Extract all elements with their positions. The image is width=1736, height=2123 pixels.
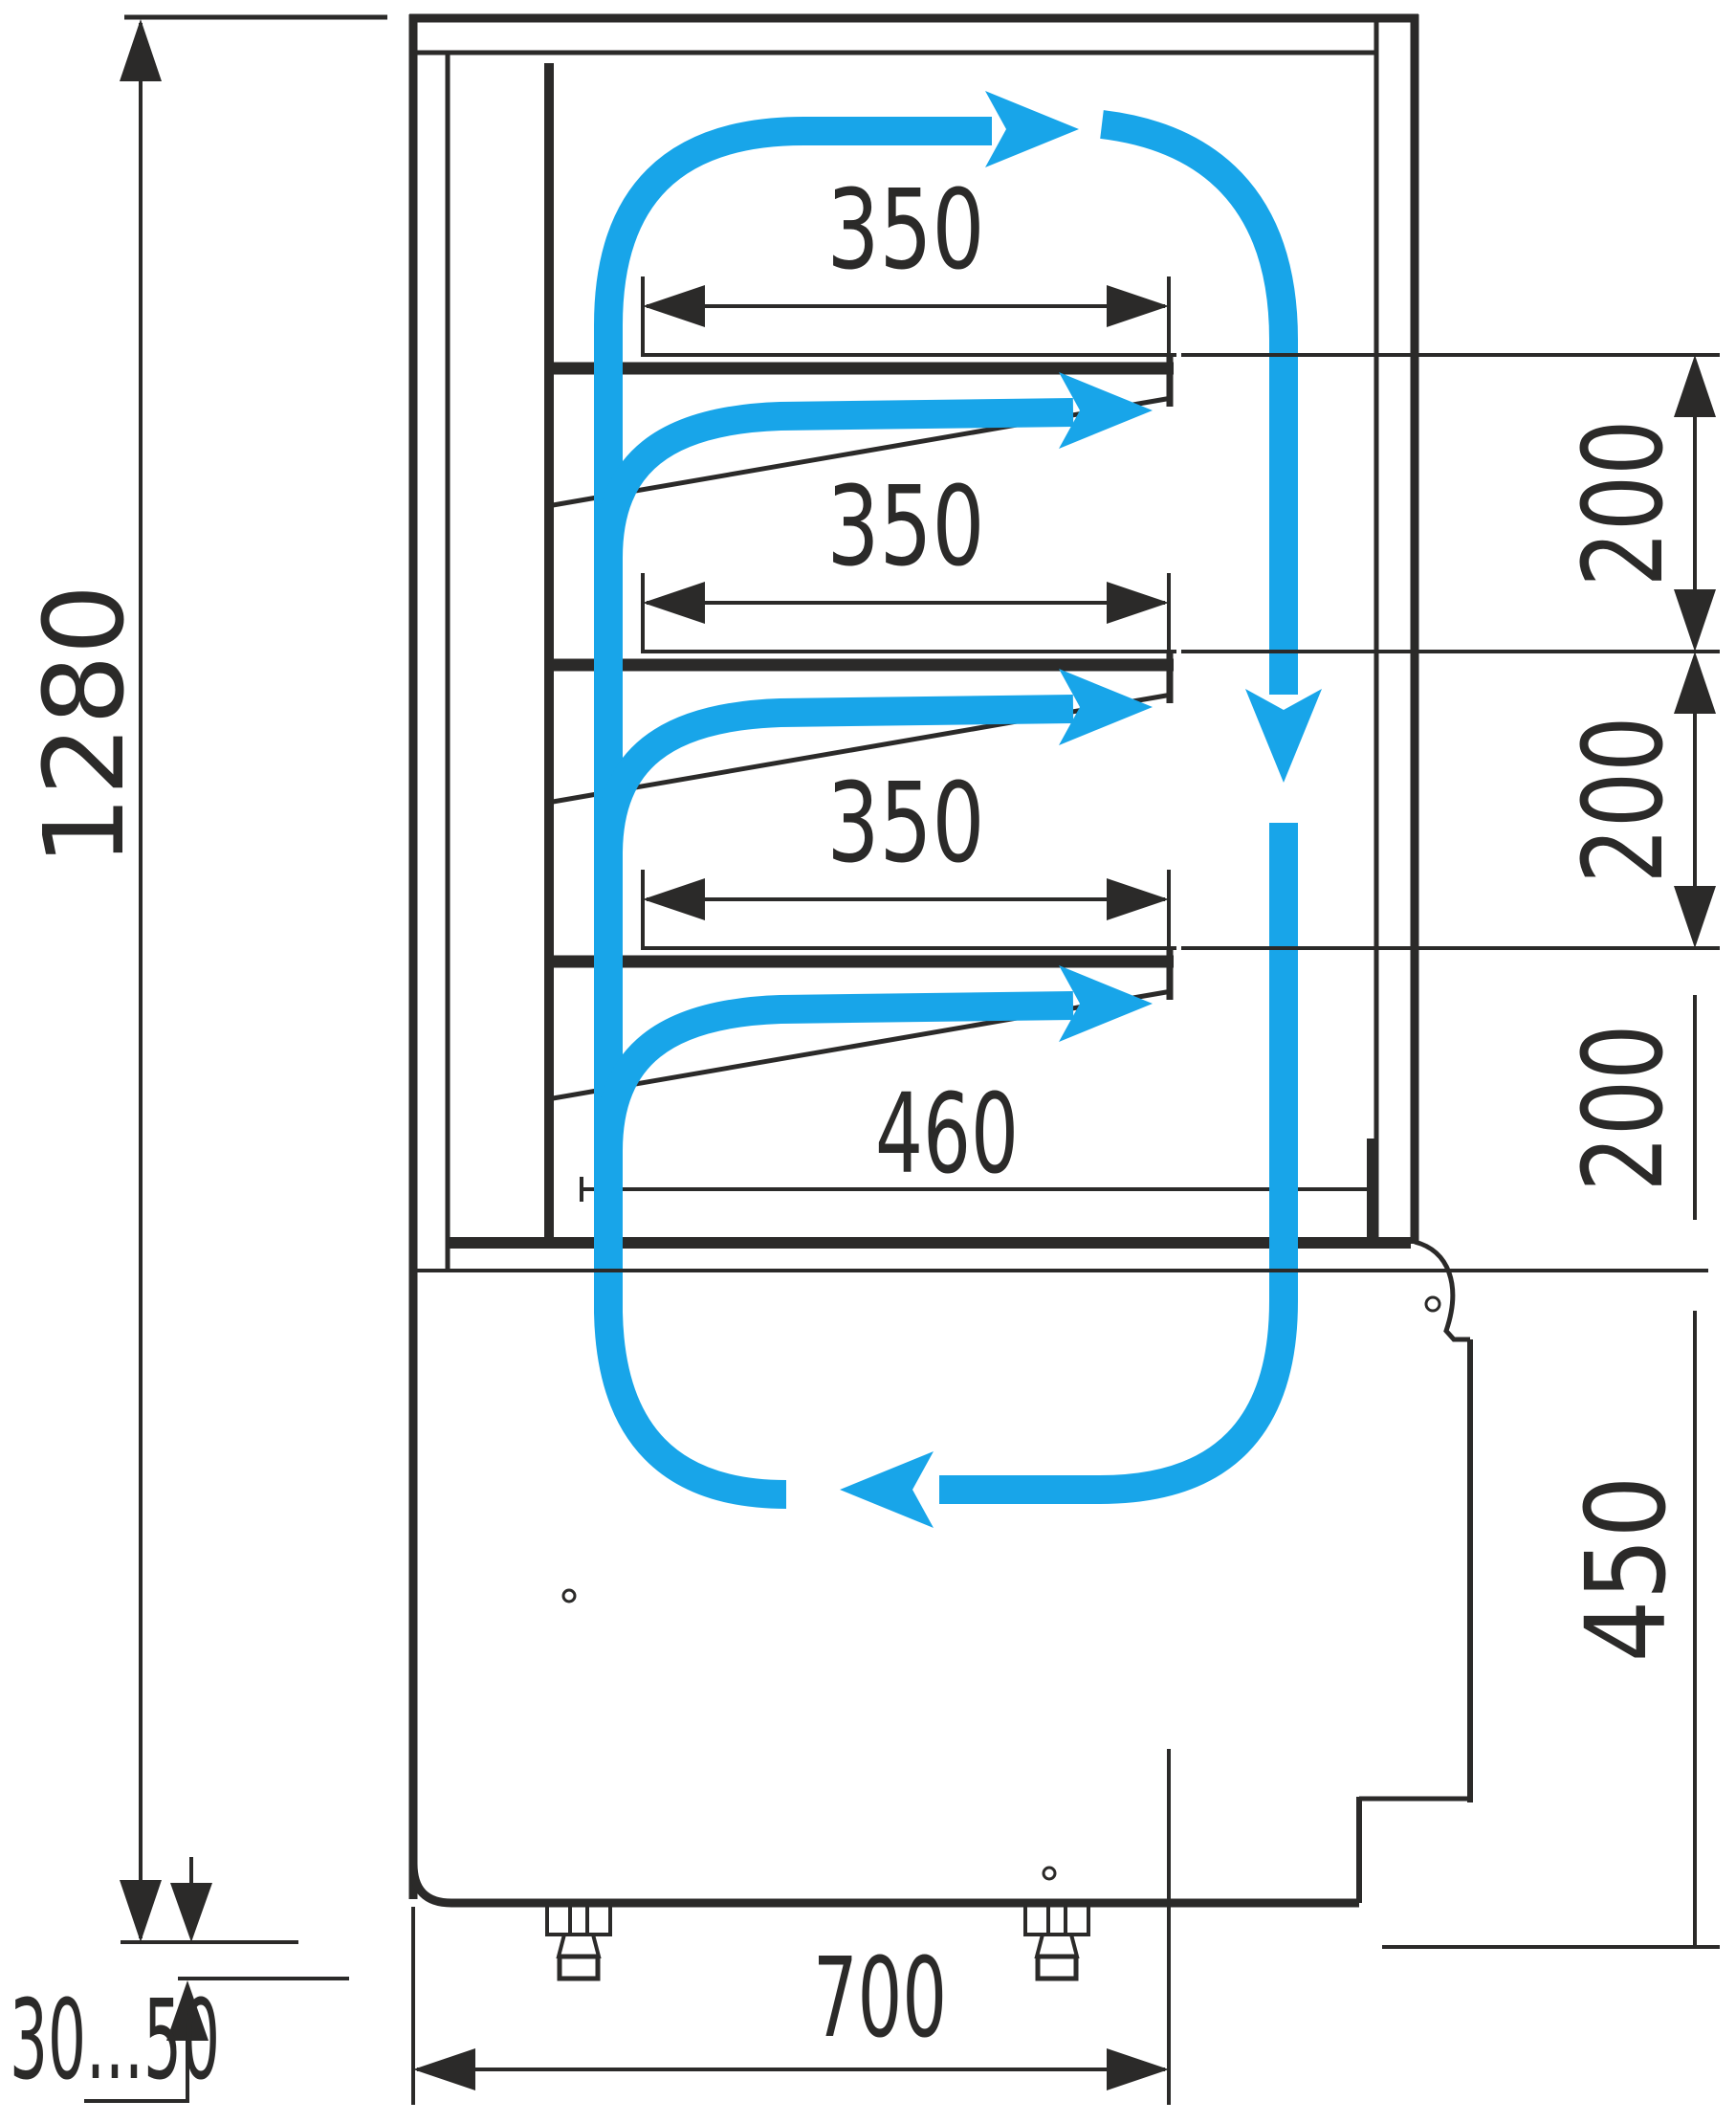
dim-base-depth [413,1749,1169,2105]
label-deck-depth: 460 [875,1071,1019,1199]
base-bottom [413,1864,1359,1903]
label-shelf-depth-2: 350 [827,463,985,591]
dimension-labels: 1280 350 350 350 200 200 200 460 450 700… [10,166,1691,2105]
dim-overall-height [120,17,387,1942]
label-shelf-depth-1: 350 [827,166,985,295]
drawing-canvas: 1280 350 350 350 200 200 200 460 450 700… [0,0,1736,2123]
label-shelf-depth-3: 350 [827,760,985,888]
label-overall-height: 1280 [21,585,149,867]
label-gap-3: 200 [1560,1025,1688,1192]
flow-arrow-right-icon [985,91,1079,167]
front-base-profile [1415,1242,1470,1339]
label-base-height: 450 [1563,1476,1691,1663]
flow-arrow-left-icon [840,1451,934,1528]
label-base-depth: 700 [813,1935,947,2063]
label-gap-2: 200 [1560,717,1688,884]
adjustable-foot-right [1025,1903,1088,1979]
screw-icon [1044,1868,1055,1879]
dimensions [84,17,1720,2105]
flow-arrow-down-icon [1245,689,1322,783]
label-foot-range: 30...50 [10,1977,220,2105]
display-case-section-drawing: 1280 350 350 350 200 200 200 460 450 700… [0,0,1736,2123]
screw-icon [563,1590,575,1602]
adjustable-foot-left [547,1903,610,1979]
label-gap-1: 200 [1560,420,1688,587]
screw-icon [1426,1297,1439,1311]
